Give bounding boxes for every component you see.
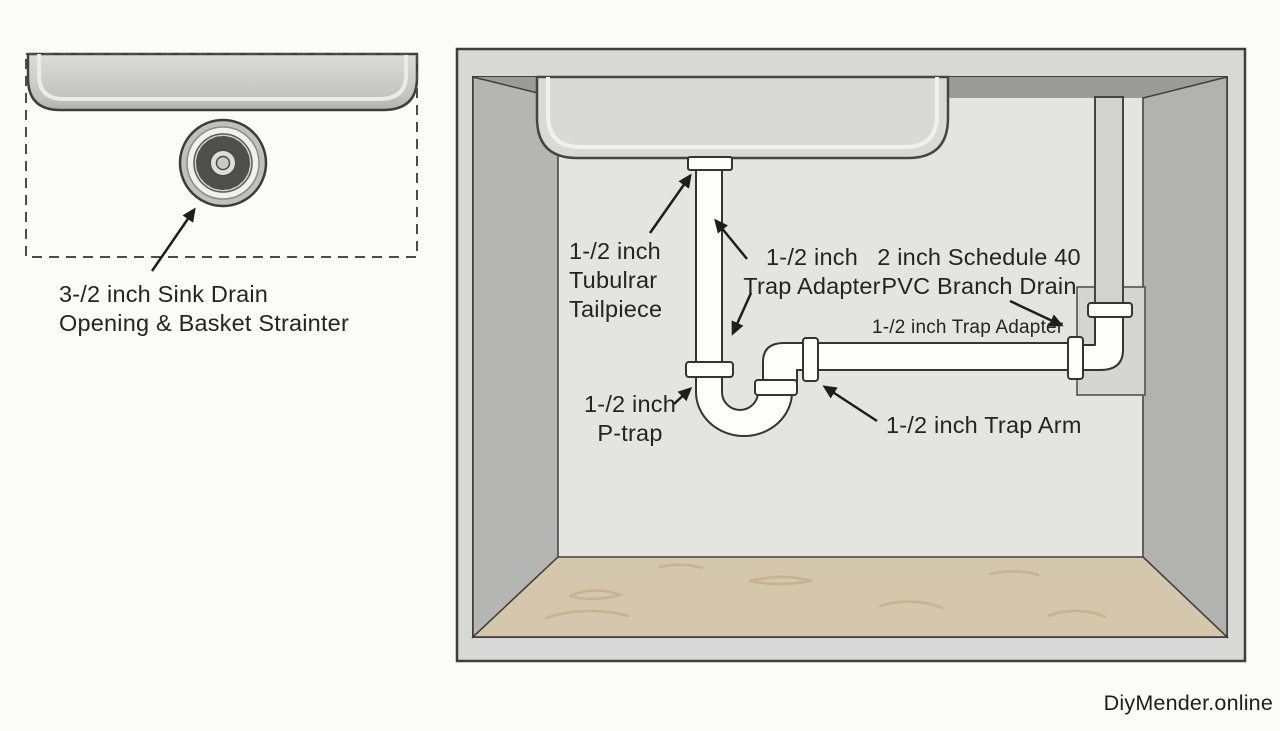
label-trap-adapter-upper-l1: 1-/2 inch: [736, 243, 888, 272]
label-branch-drain-l2: PVC Branch Drain: [870, 272, 1088, 301]
inset-caption-line2: Opening & Basket Strainter: [59, 309, 349, 338]
label-trap-adapter-upper-l2: Trap Adapter: [736, 272, 888, 301]
branch-elbow-nut: [1088, 303, 1132, 317]
label-branch-drain-l1: 2 inch Schedule 40: [870, 243, 1088, 272]
branch-drain-pipe: [1095, 97, 1123, 303]
slip-nut-arm: [803, 338, 818, 381]
slip-nut-tailpiece: [686, 362, 733, 377]
trap-arm-pipe: [810, 343, 1068, 370]
basket-strainer-icon: [180, 120, 266, 206]
label-branch-drain: 2 inch Schedule 40 PVC Branch Drain: [870, 243, 1088, 301]
watermark-text: DiyMender.online: [1104, 691, 1273, 716]
trap-adapter-fitting: [1068, 337, 1083, 379]
label-tailpiece-l3: Tailpiece: [569, 295, 662, 324]
cabinet-left-wall: [473, 77, 558, 637]
tailpiece-flange: [688, 157, 732, 170]
tailpiece-pipe: [696, 170, 722, 363]
label-p-trap-l1: 1-/2 inch: [572, 390, 688, 419]
diagram-page: 3-/2 inch Sink Drain Opening & Basket St…: [0, 0, 1280, 731]
cabinet-right-wall: [1143, 77, 1227, 637]
cabinet-floor: [473, 557, 1227, 637]
label-tailpiece-l2: Tubulrar: [569, 266, 662, 295]
inset-caption-line1: 3-/2 inch Sink Drain: [59, 280, 268, 309]
label-p-trap: 1-/2 inch P-trap: [572, 390, 688, 448]
label-trap-adapter-upper: 1-/2 inch Trap Adapter: [736, 243, 888, 301]
label-tailpiece-l1: 1-/2 inch: [569, 237, 662, 266]
sink-bottom-shape: [28, 54, 417, 110]
strainer-arrow: [152, 210, 194, 271]
slip-nut-outlet: [755, 380, 797, 395]
label-tailpiece: 1-/2 inch Tubulrar Tailpiece: [569, 237, 662, 324]
label-p-trap-l2: P-trap: [572, 419, 688, 448]
cabinet-cutaway-figure: [450, 40, 1260, 680]
label-trap-arm: 1-/2 inch Trap Arm: [886, 411, 1082, 440]
label-trap-adapter-lower: 1-/2 inch Trap Adapter: [872, 317, 1063, 339]
